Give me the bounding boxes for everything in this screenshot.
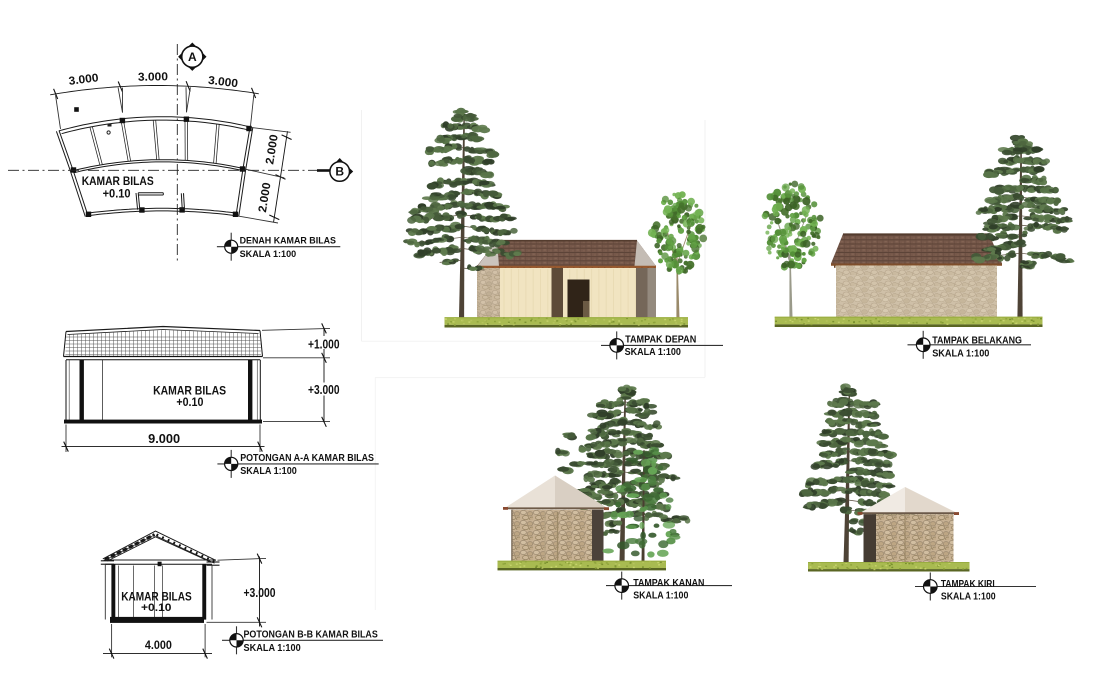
svg-text:SKALA 1:100: SKALA 1:100 (244, 643, 302, 654)
svg-text:+0.10: +0.10 (176, 395, 203, 409)
svg-text:B: B (335, 165, 344, 179)
svg-text:POTONGAN A-A KAMAR BILAS: POTONGAN A-A KAMAR BILAS (240, 453, 374, 464)
svg-text:SKALA 1:100: SKALA 1:100 (240, 249, 297, 260)
svg-text:KAMAR BILAS: KAMAR BILAS (82, 176, 154, 188)
svg-text:+0.10: +0.10 (103, 189, 131, 201)
svg-text:9.000: 9.000 (148, 432, 180, 446)
svg-text:SKALA 1:100: SKALA 1:100 (625, 347, 682, 358)
svg-text:DENAH KAMAR BILAS: DENAH KAMAR BILAS (240, 235, 336, 246)
svg-text:TAMPAK KANAN: TAMPAK KANAN (633, 578, 704, 589)
svg-text:+1.000: +1.000 (308, 337, 340, 351)
svg-text:TAMPAK BELAKANG: TAMPAK BELAKANG (932, 335, 1022, 346)
svg-text:SKALA 1:100: SKALA 1:100 (932, 348, 990, 359)
svg-text:SKALA 1:100: SKALA 1:100 (240, 466, 297, 477)
svg-text:TAMPAK KIRI: TAMPAK KIRI (941, 579, 995, 590)
svg-text:+3.000: +3.000 (308, 383, 340, 397)
svg-text:+3.000: +3.000 (244, 586, 276, 600)
svg-text:4.000: 4.000 (145, 638, 172, 652)
svg-text:3.000: 3.000 (138, 71, 168, 84)
svg-text:A: A (188, 50, 197, 64)
svg-text:+0.10: +0.10 (141, 602, 172, 614)
svg-text:POTONGAN B-B KAMAR BILAS: POTONGAN B-B KAMAR BILAS (244, 630, 379, 641)
svg-text:SKALA 1:100: SKALA 1:100 (633, 591, 689, 602)
svg-text:TAMPAK DEPAN: TAMPAK DEPAN (625, 334, 696, 345)
svg-text:SKALA 1:100: SKALA 1:100 (941, 592, 996, 603)
